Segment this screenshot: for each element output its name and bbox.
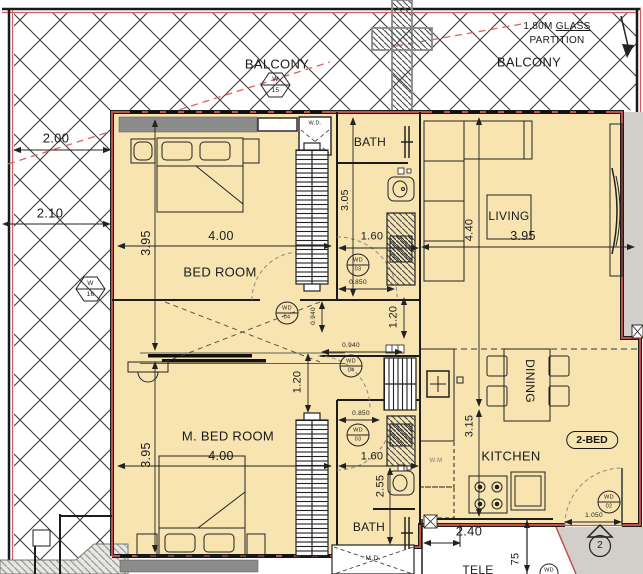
- kitchen-label: KITCHEN: [481, 450, 540, 463]
- symbol-wd04b-code: WD: [346, 359, 356, 365]
- dim-bath-top-depth: 3.05: [340, 189, 351, 211]
- dim-bath-top-width: 1.60: [361, 232, 384, 243]
- bedroom-label: BED ROOM: [183, 266, 256, 279]
- symbol-w16-num: 16: [87, 291, 95, 298]
- dim-entry-width: 1.050: [585, 513, 603, 520]
- md-box-label: M.D.: [366, 556, 381, 563]
- symbol-wd04b-num: 04: [348, 368, 355, 374]
- beam-bottom: [120, 560, 258, 572]
- dim-hall-passage-b: 0.940: [342, 343, 360, 350]
- dim-bath-bottom-depth: 2.55: [376, 475, 387, 498]
- symbol-w15-num: 15: [272, 87, 280, 94]
- symbol-wd03a-code: WD: [353, 258, 363, 264]
- living-label: LIVING: [488, 210, 529, 222]
- bath-top-label: BATH: [354, 136, 386, 148]
- beam-top: [119, 117, 257, 132]
- bath-bottom-label: BATH: [353, 521, 385, 533]
- symbol-wd03b-num: 03: [355, 437, 362, 443]
- symbol-wd02-num: 02: [606, 504, 613, 510]
- dim-living-width: 3.95: [510, 230, 536, 243]
- balcony-left-label: BALCONY: [245, 58, 309, 71]
- symbol-wd-cut-code: WD: [544, 568, 554, 574]
- unit-door-number: 2: [597, 541, 603, 551]
- symbol-wd03b-code: WD: [353, 428, 363, 434]
- symbol-wd04a-num: 04: [284, 315, 291, 321]
- symbol-w15-code: W: [272, 77, 278, 84]
- floor-plan-drawing: [0, 0, 643, 574]
- window-box: [258, 118, 297, 131]
- dim-bath-bottom-door: 0.850: [352, 411, 370, 418]
- symbol-w16-code: W: [87, 281, 93, 288]
- tele-label: TELE: [462, 564, 493, 574]
- glass-partition-label: 1.80M GLASS: [523, 22, 590, 32]
- washing-machine-label: W.M: [430, 458, 443, 464]
- floor-plan: BALCONY BALCONY 1.80M GLASS PARTITION BE…: [0, 0, 643, 574]
- balcony-hatch-left: [14, 110, 112, 560]
- exterior-strip-right: [624, 112, 643, 338]
- wd-box-label: W.D.: [308, 121, 321, 127]
- glass-partition-label2: PARTITION: [529, 36, 584, 46]
- dim-hall-width: 1.20: [389, 306, 400, 329]
- symbol-wd04a-code: WD: [282, 306, 292, 312]
- glass-partition-word: GLASS: [556, 21, 591, 32]
- dim-balcony-top: 2.00: [43, 132, 70, 145]
- dim-bath-top-door: 0.850: [349, 280, 367, 287]
- dim-balcony-mid: 2.10: [37, 207, 64, 220]
- mbedroom-label: M. BED ROOM: [182, 430, 274, 443]
- dim-bedroom-depth: 3.95: [140, 230, 153, 256]
- dim-living-depth: 4.40: [465, 219, 476, 242]
- dim-mbed-wardrobe: 1.20: [293, 371, 304, 394]
- dining-label: DINING: [524, 359, 536, 403]
- dim-kitchen-depth: 3.15: [465, 415, 476, 438]
- dim-lower-unit-width: 2.40: [456, 525, 483, 538]
- dim-bath-bottom-width: 1.60: [361, 452, 384, 463]
- dim-mbed-width: 4.00: [208, 450, 234, 463]
- symbol-wd02-code: WD: [604, 495, 614, 501]
- symbol-wd03a-num: 03: [355, 267, 362, 273]
- balcony-right-label: BALCONY: [497, 56, 561, 69]
- dim-mbed-depth: 3.95: [140, 442, 153, 468]
- dim-bedroom-width: 4.00: [208, 230, 234, 243]
- glass-partition-size: 1.80M: [523, 21, 552, 32]
- dim-lower-unit-partial: 75: [511, 553, 522, 566]
- unit-type-badge: 2-BED: [566, 431, 618, 449]
- dim-hall-passage: 0.940: [311, 307, 318, 325]
